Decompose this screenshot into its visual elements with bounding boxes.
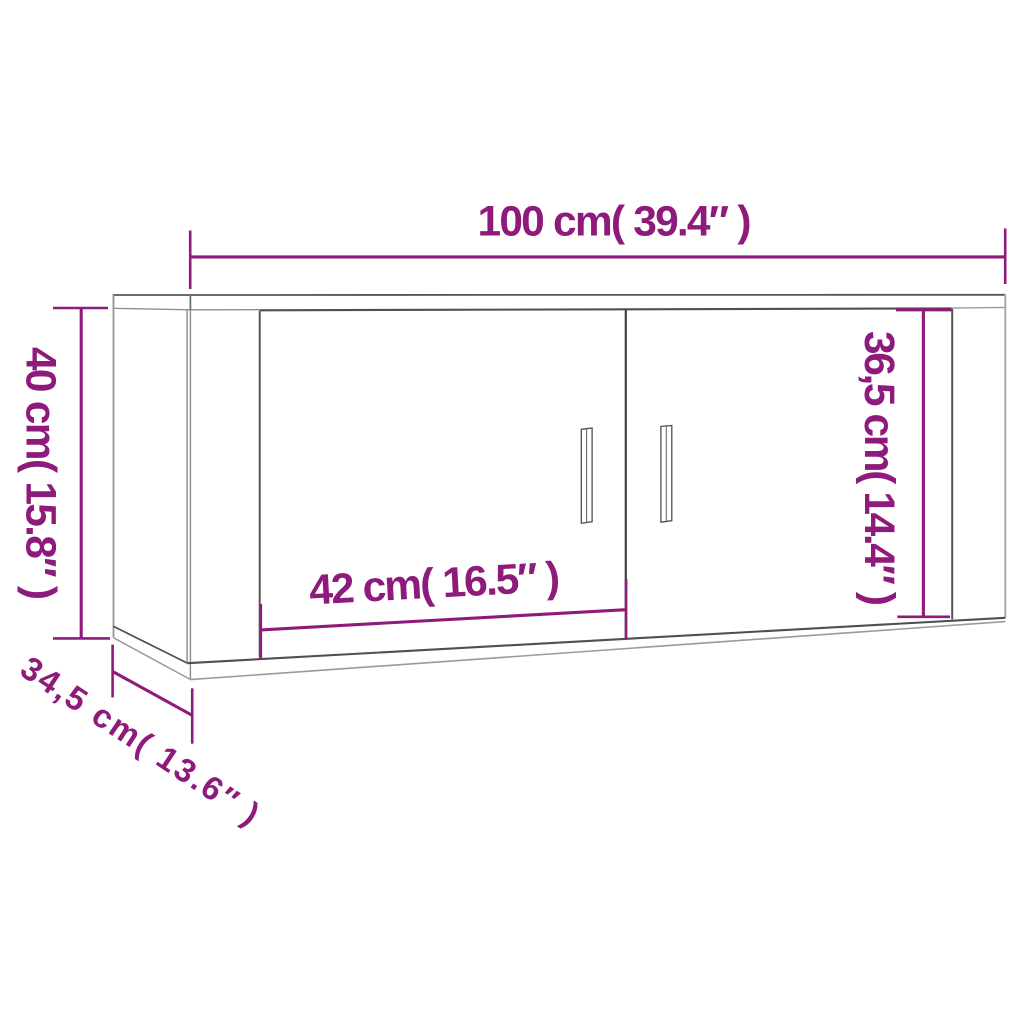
svg-text:36,5 cm( 14.4″ ): 36,5 cm( 14.4″ ) bbox=[855, 331, 902, 606]
svg-text:100 cm( 39.4″ ): 100 cm( 39.4″ ) bbox=[478, 199, 752, 246]
svg-text:40 cm( 15.8″ ): 40 cm( 15.8″ ) bbox=[17, 347, 64, 600]
